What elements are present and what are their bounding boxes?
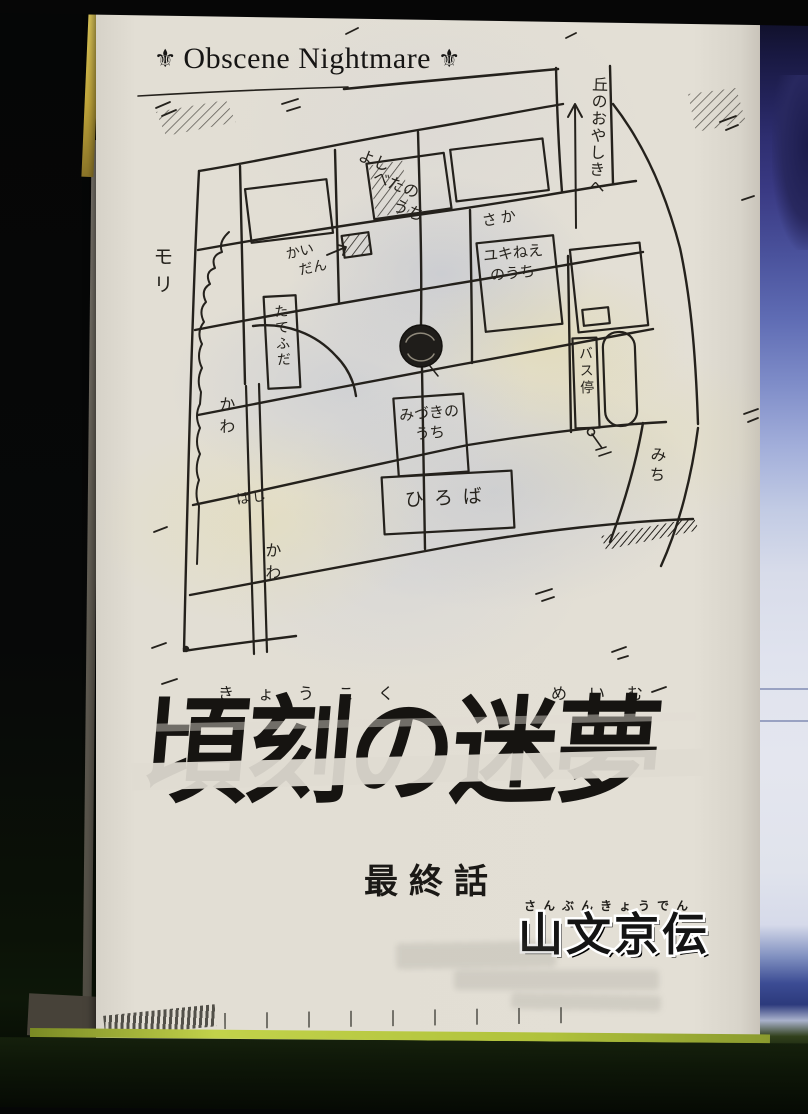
page-title: Obscene Nightmare — [183, 42, 431, 76]
adjacent-page-mountain — [772, 75, 808, 250]
map-label-bus-stop: バス停 — [577, 346, 596, 427]
bleed-through-ghost — [454, 970, 659, 990]
adjacent-page-panel-line — [760, 720, 808, 722]
scan-bottom-dark-area — [0, 1037, 808, 1114]
scanned-manga-spread: { "header": { "ornament_glyph": "⚜", "ti… — [0, 0, 808, 1063]
pen-scribbles — [152, 28, 758, 692]
bus-loop — [602, 331, 637, 426]
map-label-forest: モリ — [150, 246, 173, 326]
bleed-through-ghost — [396, 941, 556, 970]
map-label-yuki-house: ユキねえ のうち — [482, 241, 546, 286]
adjacent-page-panel-line — [760, 688, 808, 690]
map-label-mizuki-house: みづきの うち — [398, 401, 461, 445]
stairs-hatch — [342, 232, 372, 258]
english-header: ⚜ Obscene Nightmare ⚜ — [154, 42, 514, 76]
adjacent-page-strip — [760, 0, 808, 1063]
fleur-icon: ⚜ — [438, 47, 460, 72]
chapter-label: 最終話 — [324, 854, 539, 903]
map-label-river-upper: かわ — [216, 396, 234, 478]
manga-title-page: ⚜ Obscene Nightmare ⚜ 丘のおやしきへ よし べたの うち … — [96, 4, 760, 1040]
hill-arrow-icon — [568, 104, 582, 228]
fleur-icon: ⚜ — [154, 47, 176, 72]
map-label-river-lower: かわ — [262, 542, 280, 632]
signpost-icon — [588, 429, 612, 457]
map-corner-dot — [183, 646, 189, 652]
